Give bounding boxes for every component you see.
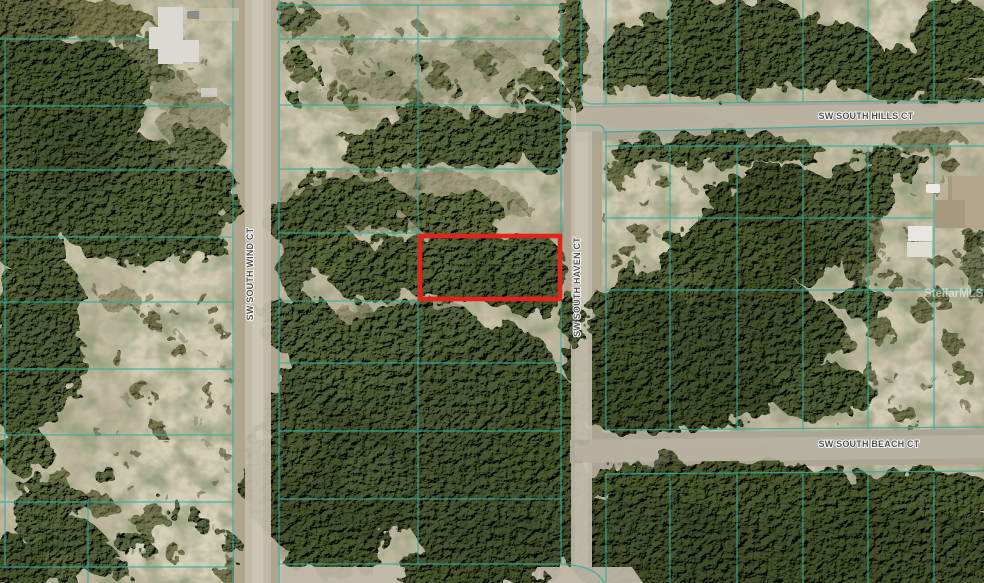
svg-text:SW SOUTH WIND CT: SW SOUTH WIND CT xyxy=(245,227,255,320)
svg-text:SW SOUTH BEACH CT: SW SOUTH BEACH CT xyxy=(819,439,920,449)
svg-text:SW SOUTH HILLS CT: SW SOUTH HILLS CT xyxy=(819,111,914,121)
svg-text:StellarMLS: StellarMLS xyxy=(924,288,984,300)
svg-text:SW SOUTH HAVEN CT: SW SOUTH HAVEN CT xyxy=(572,237,582,337)
